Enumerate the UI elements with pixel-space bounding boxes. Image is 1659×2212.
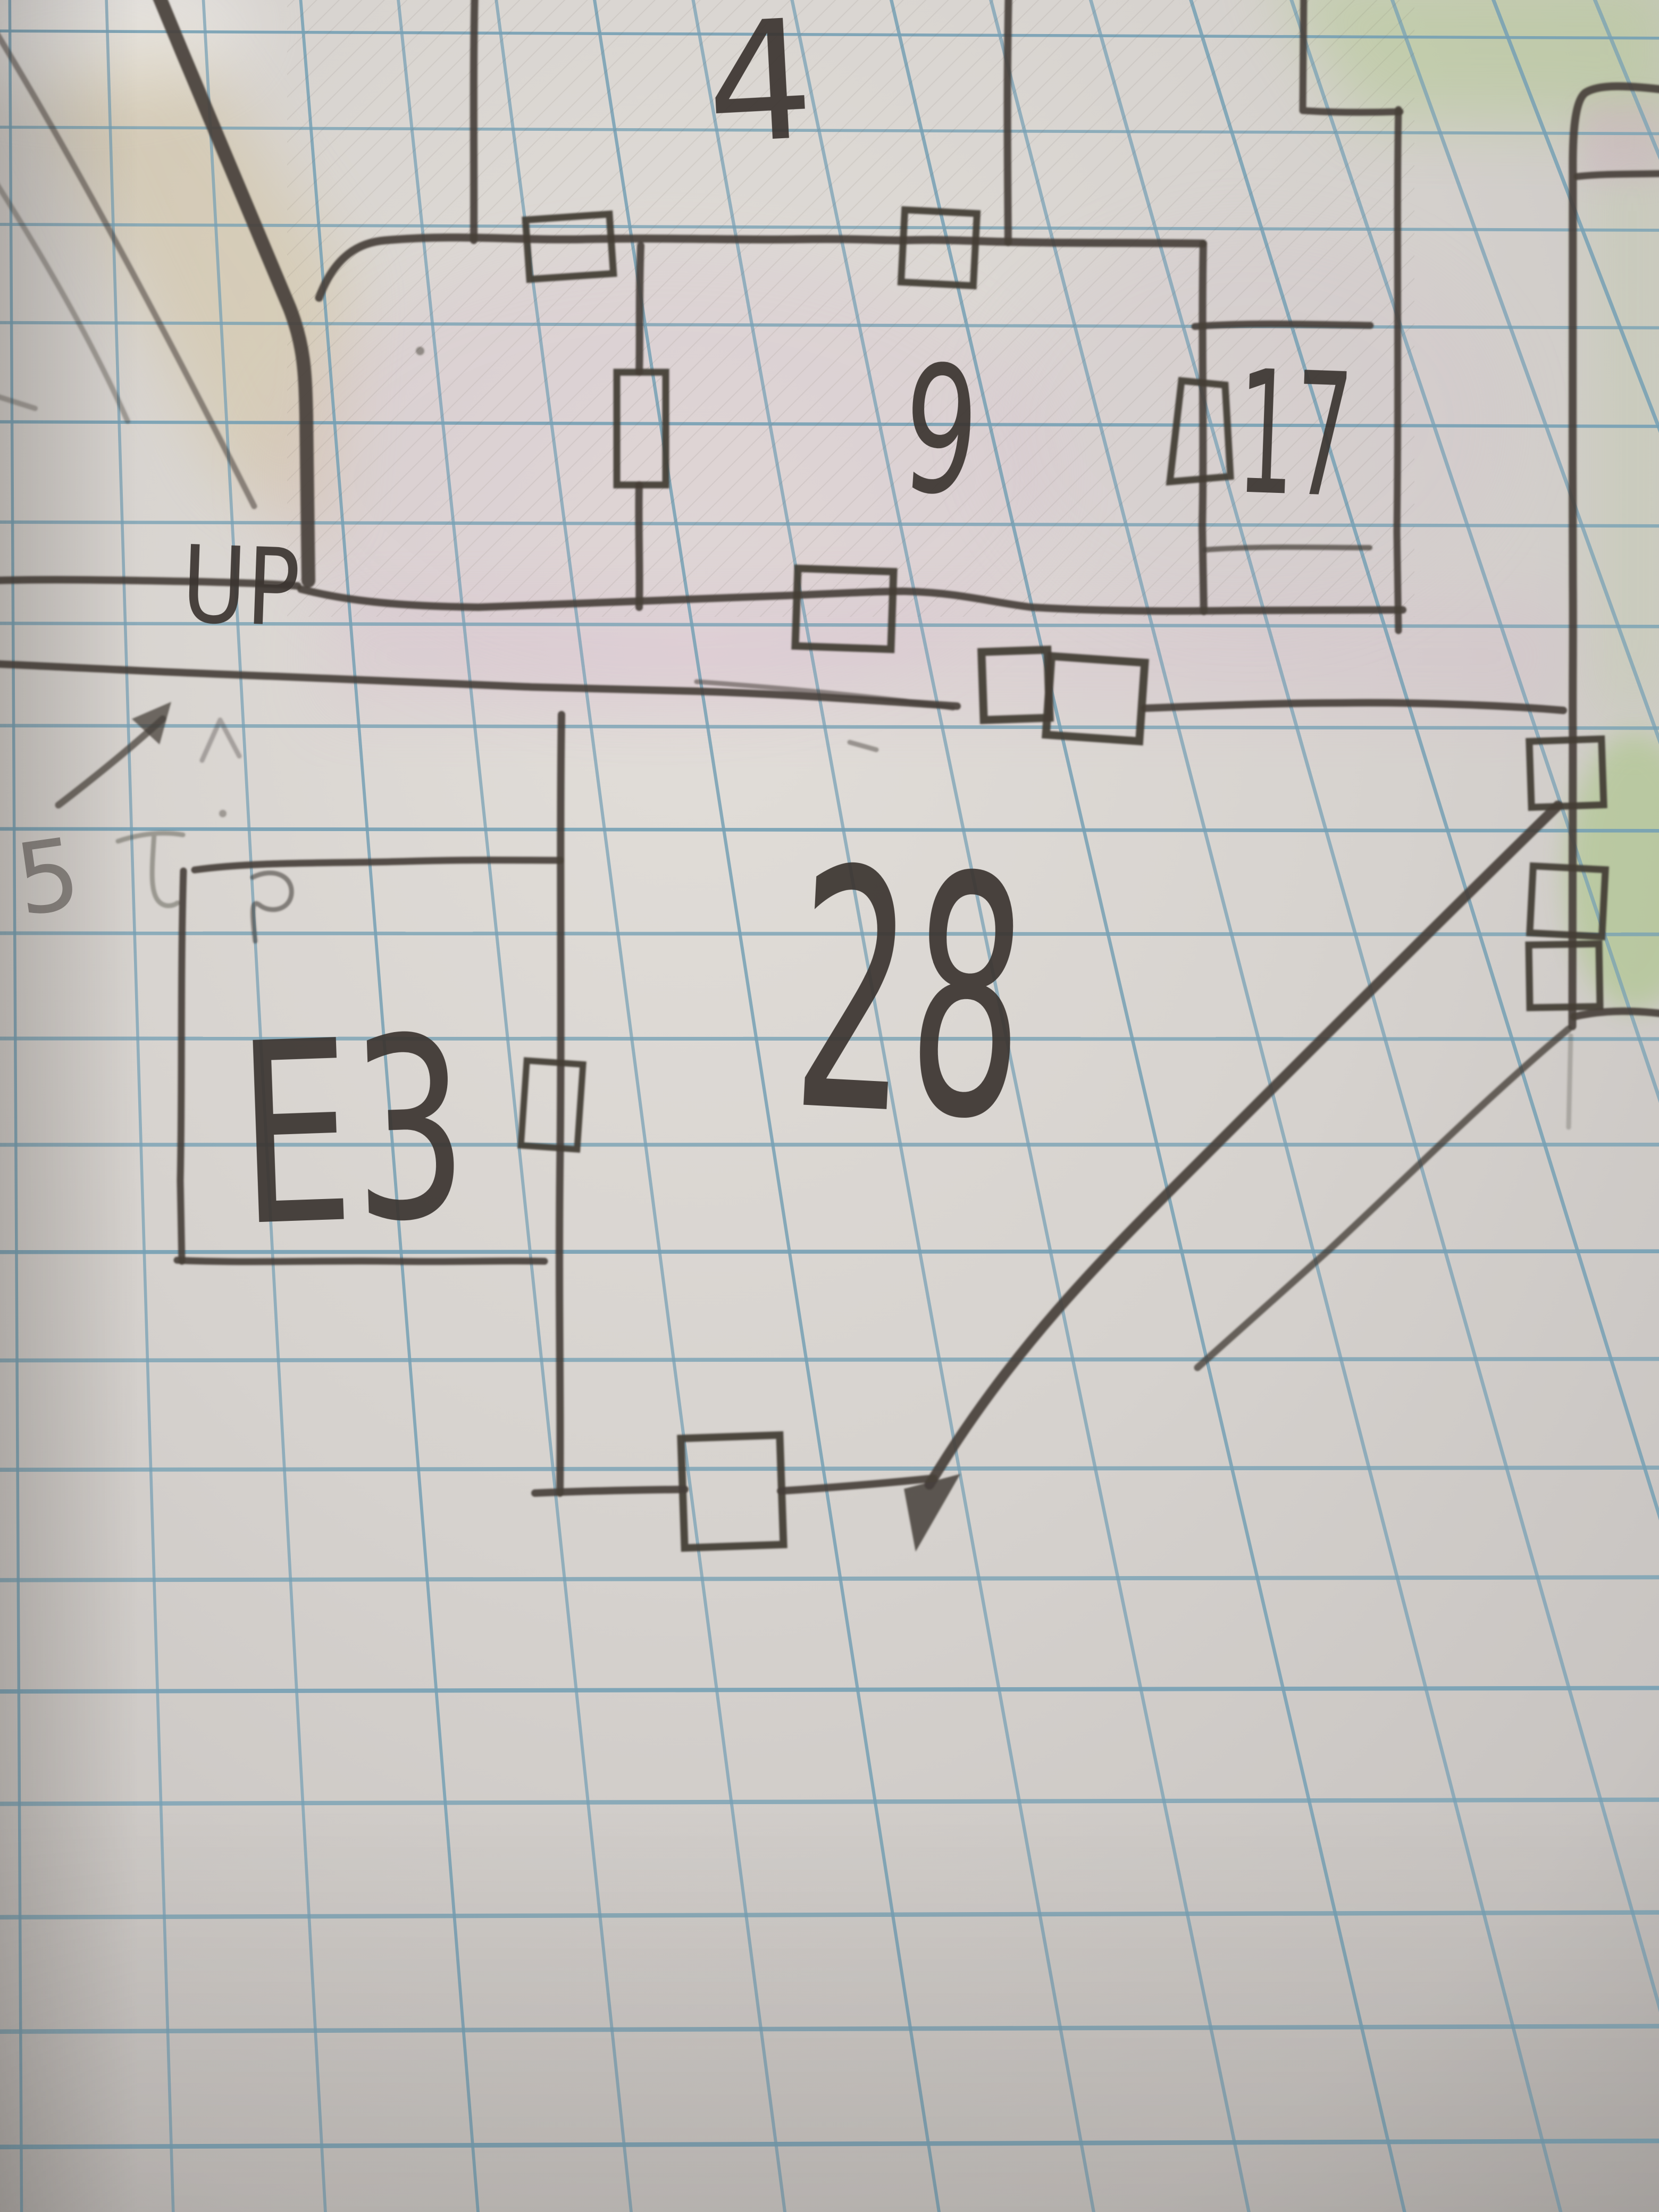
grid-line [0,1468,1659,1470]
pink-tint-notch [1582,101,1659,181]
wall-room4-east [1008,0,1009,242]
room-17-label: 17 [1234,334,1355,535]
grid-line [0,1359,1659,1361]
wall-room17-north [1195,324,1370,326]
wall-room17-east [1397,110,1398,631]
wall-room4-west [474,0,475,240]
up-stairs-label: UP [180,523,302,651]
wall-room17-south [1205,547,1370,550]
pencil-dot-2 [219,810,227,817]
wall-roomE3-west [180,871,183,1261]
bottom-shadow [0,1808,1659,2212]
room-9-label: 9 [896,327,985,536]
wall-faint-stub [1569,1036,1571,1127]
grid-line [0,1577,1659,1580]
room-4-label: 4 [701,0,818,181]
room-E3-label: E3 [233,983,472,1282]
wall-room9-east [1202,244,1204,611]
dungeon-map: 4 9 17 28 E3 UP 5 [0,0,1659,2212]
room-28-label: 28 [786,799,1035,1194]
wall-room28-west [559,715,562,1493]
graph-paper-map-photo: 4 9 17 28 E3 UP 5 [0,0,1659,2212]
pencil-dot-1 [416,347,424,355]
wall-east-passage [1577,173,1659,177]
